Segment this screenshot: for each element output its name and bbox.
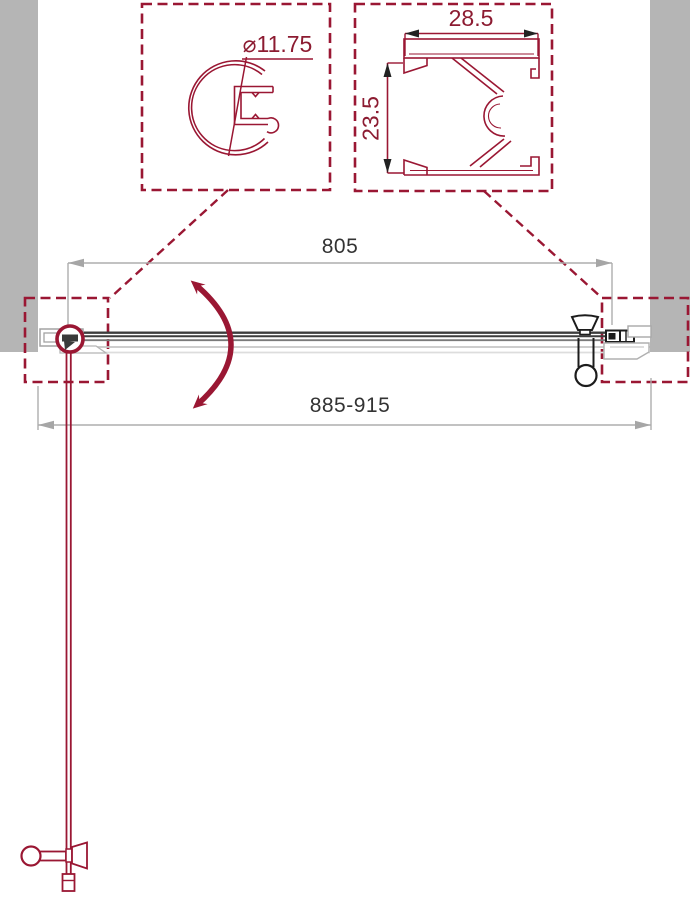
hinge-pivot	[57, 326, 83, 352]
glass-width-dimension-label: 805	[295, 235, 385, 259]
door-knob-closed	[572, 315, 598, 386]
door-swing-arc	[196, 285, 231, 404]
overall-width-dimension-label: 885-915	[275, 394, 425, 418]
wall-profile-section	[404, 39, 539, 175]
open-door-outline	[63, 352, 75, 891]
dimension-wall-profile-depth	[384, 63, 405, 173]
door-handle-open	[22, 843, 88, 869]
shower-door-plan-drawing	[0, 0, 690, 900]
round-profile-section	[189, 61, 279, 155]
glass-panel-line	[83, 333, 650, 353]
profile-diameter-label: ⌀11.75	[225, 31, 330, 58]
dimension-wall-profile-width	[405, 30, 538, 57]
technical-drawing-canvas: 805 885-915 ⌀11.75 28.5 23.5	[0, 0, 690, 900]
wall-profile-width-label: 28.5	[421, 5, 521, 32]
wall-profile-depth-label: 23.5	[358, 91, 385, 147]
dimension-glass-width	[68, 259, 612, 325]
wall-profile-detail-box	[355, 4, 552, 191]
